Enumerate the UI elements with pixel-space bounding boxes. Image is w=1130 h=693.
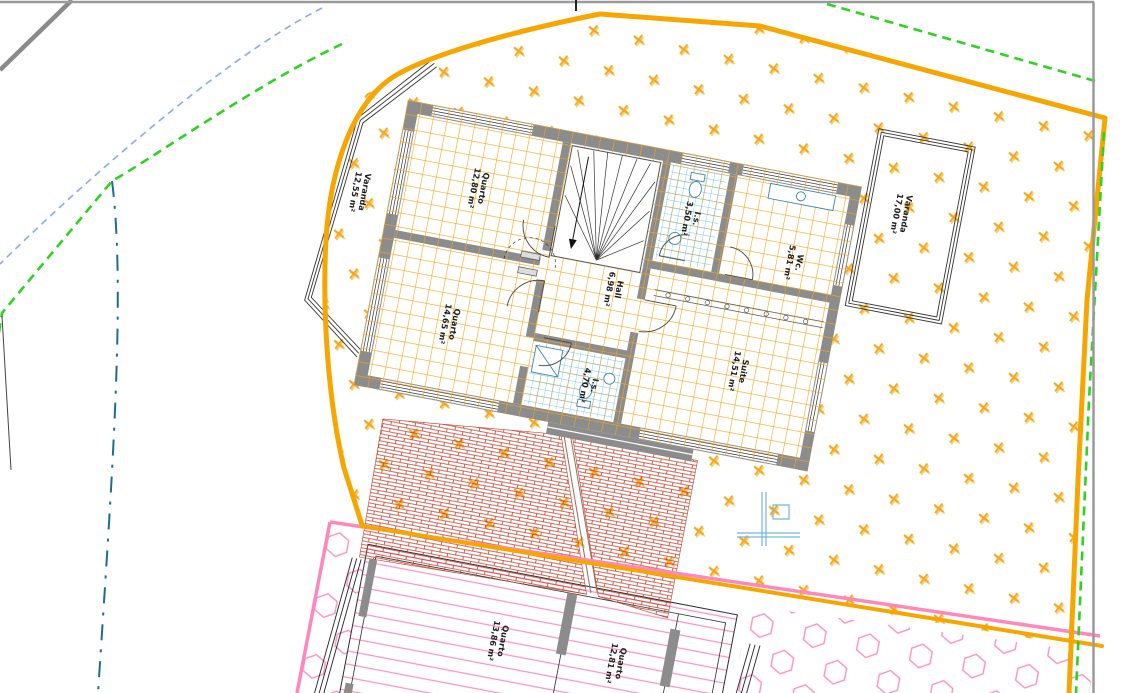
floorplan-canvas: Quarto 13,86 m² Quarto 12,81 m² Var <box>0 0 1130 693</box>
floorplan-drawing: Quarto 13,86 m² Quarto 12,81 m² Var <box>0 0 1130 693</box>
